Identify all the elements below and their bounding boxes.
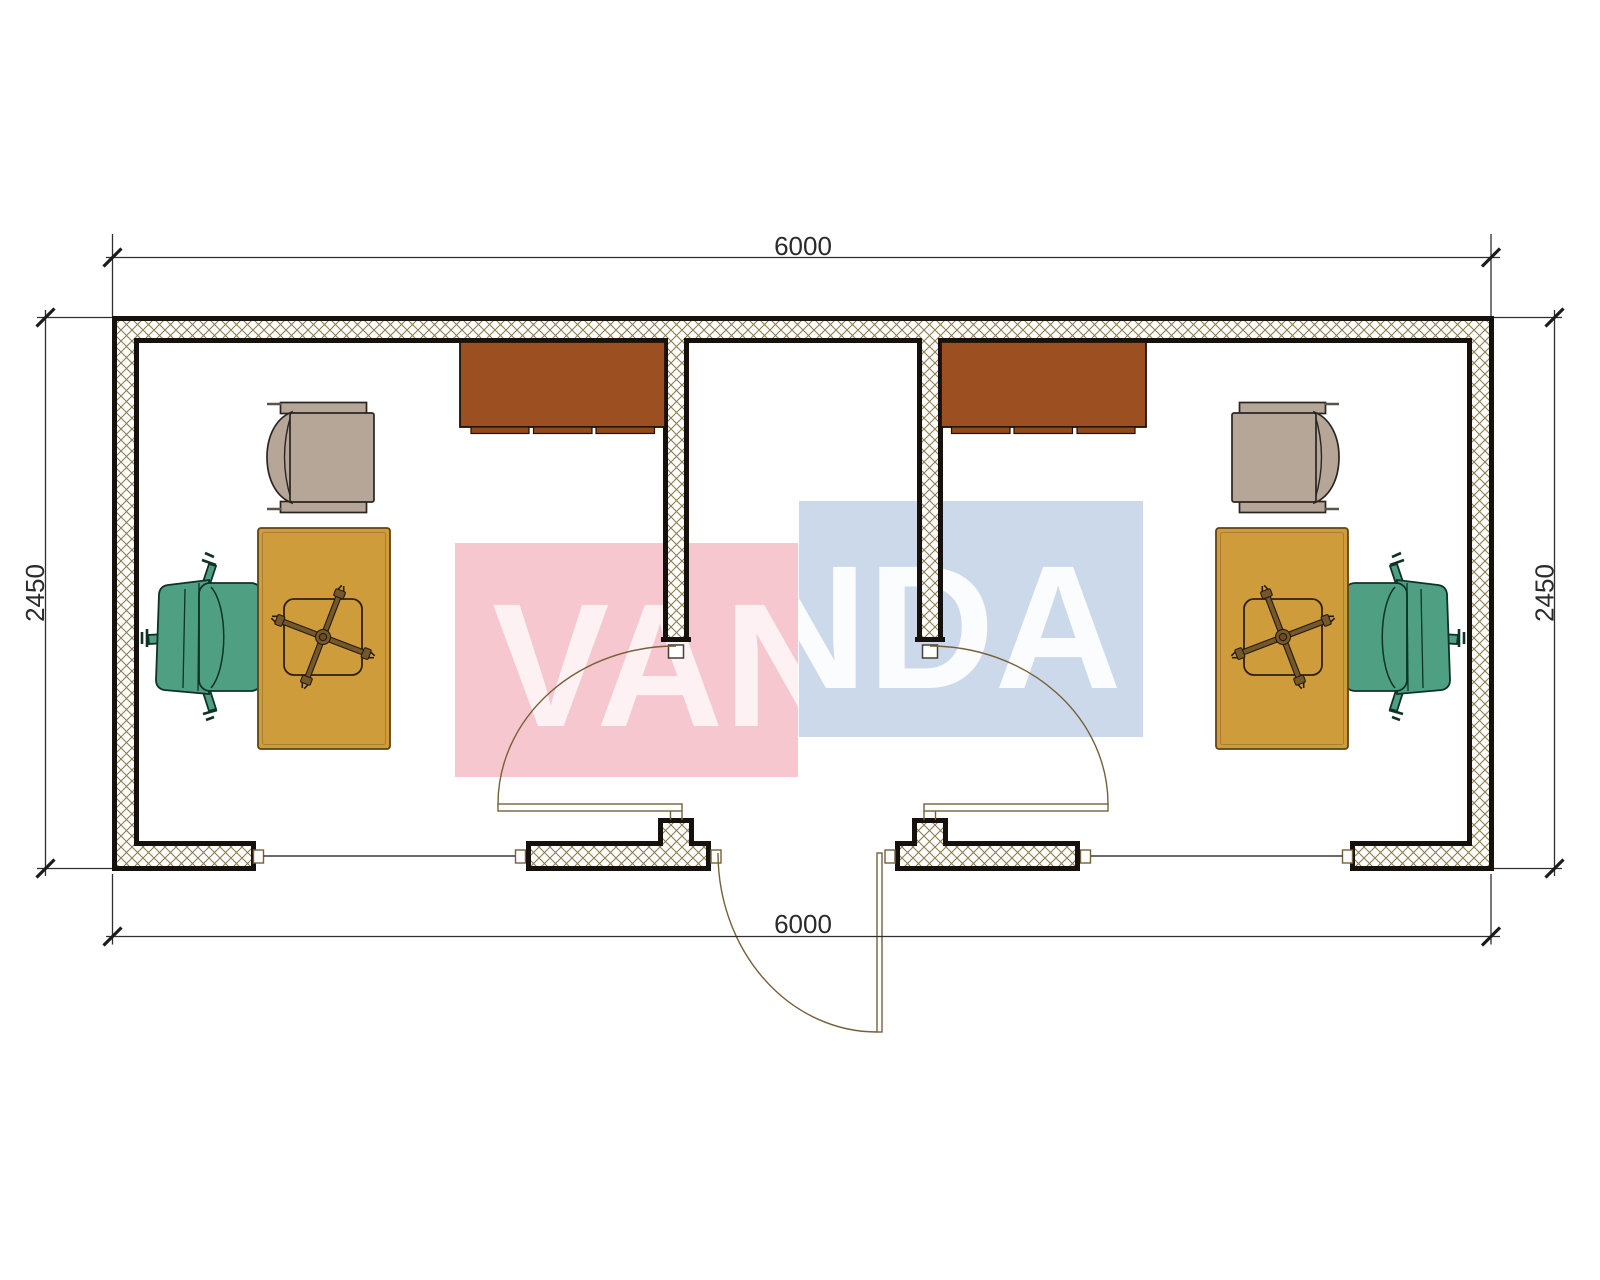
svg-text:6000: 6000 <box>774 231 832 261</box>
svg-text:6000: 6000 <box>774 909 832 939</box>
svg-text:2450: 2450 <box>1530 564 1560 622</box>
svg-text:2450: 2450 <box>20 564 50 622</box>
